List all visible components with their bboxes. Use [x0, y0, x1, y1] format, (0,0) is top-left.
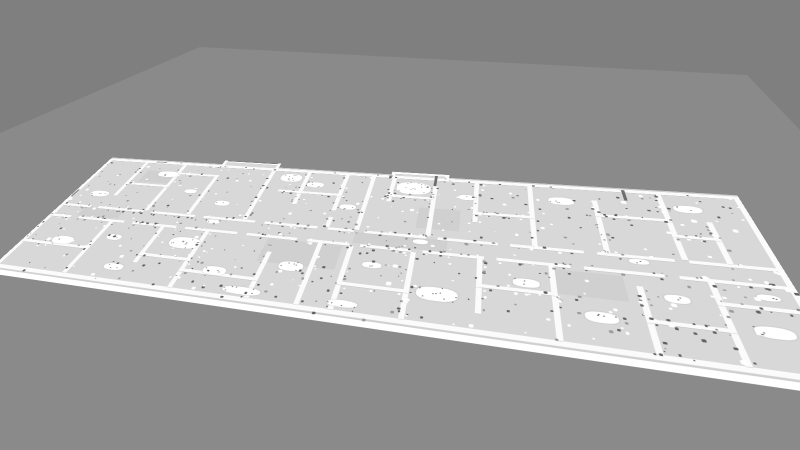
clutter-speck — [225, 289, 227, 290]
scan-noise-speck — [558, 252, 562, 254]
scan-noise-speck — [362, 201, 363, 202]
clutter-speck — [615, 316, 617, 317]
scan-noise-speck — [439, 255, 442, 257]
scan-noise-speck — [443, 237, 446, 239]
clutter-speck — [218, 272, 220, 273]
clutter-speck — [753, 326, 756, 327]
clutter-speck — [289, 180, 290, 181]
scan-noise-speck — [543, 291, 547, 294]
scan-noise-speck — [617, 329, 621, 332]
scan-noise-speck — [630, 224, 634, 226]
scan-artifact-blob — [431, 245, 435, 247]
scan-noise-speck — [621, 327, 624, 329]
scan-noise-speck — [566, 208, 569, 210]
scan-noise-speck — [729, 334, 732, 336]
clutter-speck — [292, 178, 293, 179]
scan-noise-speck — [406, 314, 408, 315]
scan-noise-speck — [748, 278, 753, 280]
scan-noise-speck — [680, 224, 684, 226]
scan-noise-speck — [585, 280, 589, 283]
scan-noise-speck — [667, 208, 671, 210]
clutter-speck — [236, 287, 238, 288]
scan-noise-speck — [695, 277, 698, 279]
scan-artifact-blob — [666, 231, 671, 233]
scan-noise-speck — [655, 196, 659, 198]
scan-noise-speck — [609, 330, 614, 333]
scan-noise-speck — [662, 341, 667, 344]
scan-artifact-blob — [414, 285, 418, 287]
clutter-speck — [422, 295, 424, 296]
scan-noise-speck — [545, 272, 548, 274]
scan-artifact-blob — [658, 206, 663, 208]
scan-noise-speck — [386, 197, 389, 198]
scan-noise-speck — [458, 273, 460, 274]
scan-noise-speck — [397, 307, 401, 310]
scan-noise-speck — [416, 212, 418, 213]
scan-noise-speck — [392, 194, 395, 196]
scan-noise-speck — [426, 187, 428, 188]
scan-noise-speck — [641, 198, 644, 200]
scan-noise-speck — [468, 223, 471, 225]
clutter-speck — [435, 293, 437, 294]
scan-noise-speck — [580, 227, 582, 228]
scan-noise-speck — [340, 185, 343, 187]
scan-artifact-blob — [541, 227, 545, 230]
clutter-speck — [421, 187, 422, 188]
clutter-speck — [405, 187, 406, 188]
scan-noise-speck — [392, 201, 394, 202]
scan-noise-speck — [598, 243, 601, 245]
clutter-speck — [216, 202, 217, 203]
scan-noise-speck — [532, 264, 534, 265]
clutter-speck — [466, 196, 467, 197]
clutter-speck — [109, 267, 111, 268]
scan-noise-speck — [536, 220, 539, 222]
clutter-speck — [372, 265, 374, 266]
scan-noise-speck — [794, 293, 800, 296]
scan-noise-speck — [722, 296, 727, 299]
scan-noise-speck — [514, 292, 518, 295]
scan-noise-speck — [564, 263, 567, 265]
scan-noise-speck — [358, 212, 360, 213]
clutter-speck — [603, 316, 605, 317]
scan-noise-speck — [693, 323, 696, 325]
scan-noise-speck — [415, 258, 418, 260]
scan-noise-speck — [705, 226, 709, 228]
scan-noise-speck — [661, 211, 665, 213]
clutter-speck — [251, 293, 253, 294]
clutter-speck — [186, 243, 188, 244]
clutter-speck — [637, 262, 639, 263]
scan-noise-speck — [385, 264, 387, 265]
scan-noise-speck — [624, 215, 628, 217]
scan-artifact-blob — [665, 297, 670, 300]
clutter-speck — [116, 267, 118, 268]
scan-noise-speck — [765, 288, 769, 290]
scan-noise-speck — [479, 221, 481, 222]
scan-noise-speck — [369, 290, 372, 292]
scan-artifact-blob — [393, 264, 398, 268]
scan-noise-speck — [475, 215, 477, 216]
scan-noise-speck — [591, 265, 594, 267]
clutter-speck — [411, 189, 412, 190]
clutter-speck — [285, 176, 286, 177]
clutter-speck — [407, 184, 408, 185]
clutter-speck — [295, 265, 297, 266]
clutter-speck — [410, 183, 411, 184]
scan-noise-speck — [471, 207, 474, 209]
clutter-speck — [223, 203, 224, 204]
clutter-speck — [100, 194, 101, 195]
scan-noise-speck — [625, 322, 628, 324]
clutter-speck — [555, 201, 556, 202]
clutter-speck — [295, 175, 296, 176]
scan-noise-speck — [638, 300, 643, 303]
scan-noise-speck — [398, 246, 400, 247]
scan-noise-speck — [686, 195, 689, 196]
scan-noise-speck — [397, 184, 399, 185]
scan-noise-speck — [479, 196, 481, 197]
scan-artifact-blob — [715, 221, 718, 222]
clutter-speck — [455, 297, 457, 298]
scan-artifact-blob — [567, 324, 571, 327]
scan-noise-speck — [613, 308, 618, 311]
clutter-speck — [514, 278, 516, 279]
clutter-speck — [353, 306, 355, 307]
scan-noise-speck — [454, 190, 456, 191]
scan-noise-speck — [531, 237, 534, 239]
scan-noise-speck — [338, 193, 341, 194]
scan-artifact-blob — [482, 185, 485, 187]
clutter-speck — [524, 280, 526, 281]
clutter-speck — [776, 299, 778, 300]
clutter-speck — [253, 289, 255, 290]
scan-noise-speck — [616, 197, 620, 199]
scan-noise-speck — [563, 236, 566, 238]
clutter-speck — [598, 314, 600, 315]
scan-noise-speck — [736, 207, 739, 208]
scan-noise-speck — [585, 270, 587, 271]
scan-noise-speck — [621, 273, 625, 275]
clutter-speck — [231, 286, 233, 287]
scan-noise-speck — [377, 175, 379, 176]
scan-noise-speck — [362, 319, 366, 322]
scan-noise-speck — [695, 235, 698, 236]
scan-noise-speck — [570, 264, 572, 265]
clutter-speck — [678, 299, 680, 300]
clutter-speck — [184, 247, 186, 248]
scan-noise-speck — [621, 253, 625, 255]
scan-noise-speck — [601, 251, 604, 253]
scan-noise-speck — [535, 246, 538, 248]
clutter-speck — [289, 176, 290, 177]
scan-noise-speck — [454, 206, 456, 207]
scan-noise-speck — [550, 310, 553, 312]
clutter-speck — [295, 270, 297, 271]
scan-noise-speck — [529, 232, 531, 233]
scan-artifact-blob — [621, 201, 627, 204]
scan-noise-speck — [478, 260, 481, 262]
scan-noise-speck — [727, 250, 731, 252]
clutter-speck — [441, 288, 443, 289]
scan-artifact-blob — [614, 252, 618, 254]
scan-noise-speck — [394, 232, 396, 234]
scan-noise-speck — [468, 182, 470, 183]
scan-noise-speck — [431, 188, 433, 189]
clutter-speck — [327, 301, 329, 302]
scan-noise-speck — [484, 296, 488, 299]
clutter-speck — [443, 298, 445, 299]
clutter-speck — [690, 210, 692, 211]
clutter-speck — [312, 185, 313, 186]
scan-artifact-blob — [389, 231, 392, 233]
scan-noise-speck — [402, 197, 405, 199]
scan-noise-speck — [680, 208, 682, 209]
scan-noise-speck — [386, 194, 388, 195]
scan-noise-speck — [410, 292, 412, 293]
clutter-speck — [419, 287, 421, 288]
scan-artifact-blob — [528, 293, 531, 295]
clutter-speck — [762, 332, 765, 333]
clutter-speck — [312, 182, 313, 183]
scan-artifact-blob — [410, 209, 414, 211]
clutter-speck — [452, 301, 454, 302]
scan-noise-speck — [712, 285, 717, 288]
scan-noise-speck — [729, 207, 733, 209]
clutter-speck — [297, 262, 299, 263]
scan-noise-speck — [363, 246, 365, 247]
clutter-speck — [281, 265, 283, 266]
clutter-speck — [680, 298, 682, 299]
scan-noise-speck — [355, 224, 358, 226]
clutter-speck — [317, 187, 318, 188]
scan-noise-speck — [655, 207, 657, 208]
clutter-speck — [772, 298, 774, 299]
scan-noise-speck — [390, 311, 394, 314]
scan-noise-speck — [480, 237, 483, 239]
scan-artifact-blob — [386, 281, 392, 285]
floor-patch — [415, 207, 460, 231]
clutter-speck — [557, 202, 558, 203]
clutter-speck — [172, 242, 174, 243]
scan-noise-speck — [567, 273, 570, 275]
scan-noise-speck — [707, 325, 710, 327]
clutter-speck — [414, 189, 415, 190]
scan-noise-speck — [344, 228, 347, 230]
scan-artifact-blob — [709, 229, 712, 230]
scan-noise-speck — [532, 185, 535, 186]
scan-noise-speck — [623, 317, 627, 319]
clutter-speck — [676, 207, 678, 208]
clutter-speck — [331, 302, 333, 303]
scan-noise-speck — [543, 246, 547, 248]
clutter-speck — [50, 240, 52, 241]
clutter-speck — [369, 266, 371, 267]
clutter-speck — [423, 192, 424, 193]
scan-noise-speck — [755, 310, 761, 313]
scan-artifact-blob — [402, 251, 406, 253]
scan-noise-speck — [448, 257, 450, 258]
scan-noise-speck — [345, 241, 347, 242]
scan-artifact-blob — [515, 234, 519, 236]
clutter-speck — [523, 284, 525, 285]
scan-noise-speck — [650, 304, 653, 306]
scan-noise-speck — [702, 339, 707, 342]
clutter-speck — [109, 264, 111, 265]
scan-noise-speck — [649, 256, 653, 258]
scan-noise-speck — [343, 278, 346, 280]
scan-noise-speck — [444, 179, 446, 180]
clutter-speck — [205, 267, 207, 268]
scan-noise-speck — [464, 243, 467, 245]
clutter-speck — [439, 292, 441, 293]
scan-noise-speck — [400, 273, 402, 274]
scan-noise-speck — [687, 286, 692, 289]
scan-noise-speck — [726, 316, 731, 319]
clutter-speck — [418, 183, 419, 184]
clutter-speck — [413, 188, 414, 189]
clutter-speck — [425, 185, 426, 186]
scan-noise-speck — [468, 299, 470, 300]
clutter-speck — [341, 305, 343, 306]
scan-noise-speck — [664, 221, 668, 223]
scan-noise-speck — [699, 201, 702, 202]
scan-noise-speck — [555, 338, 559, 341]
scan-noise-speck — [479, 214, 482, 216]
clutter-speck — [432, 293, 434, 294]
scan-noise-speck — [398, 310, 401, 312]
clutter-speck — [639, 261, 641, 262]
scan-noise-speck — [367, 193, 370, 195]
clutter-speck — [421, 184, 422, 185]
scan-artifact-blob — [536, 199, 540, 201]
scan-noise-speck — [611, 237, 614, 239]
clutter-speck — [558, 202, 559, 203]
scan-noise-speck — [380, 275, 382, 276]
clutter-speck — [198, 242, 200, 243]
3d-viewport[interactable] — [0, 0, 800, 450]
clutter-speck — [116, 237, 118, 238]
scan-noise-speck — [542, 213, 545, 215]
scan-noise-speck — [372, 260, 376, 262]
clutter-speck — [398, 191, 399, 192]
scan-noise-speck — [457, 196, 460, 198]
clutter-speck — [352, 207, 353, 208]
scan-noise-speck — [408, 233, 411, 235]
scan-noise-speck — [583, 293, 586, 295]
scan-noise-speck — [685, 235, 688, 236]
scan-noise-speck — [649, 317, 653, 320]
scan-noise-speck — [669, 308, 673, 311]
scan-noise-speck — [575, 299, 579, 301]
scan-noise-speck — [348, 267, 351, 269]
scan-noise-speck — [518, 248, 520, 249]
scan-noise-speck — [687, 239, 691, 241]
scan-artifact-blob — [591, 206, 595, 208]
clutter-speck — [288, 263, 290, 264]
scan-noise-speck — [600, 234, 602, 235]
scan-noise-speck — [394, 190, 395, 191]
scan-noise-speck — [371, 249, 375, 251]
scan-noise-speck — [340, 292, 343, 294]
scan-noise-speck — [597, 211, 600, 213]
scan-noise-speck — [358, 253, 361, 255]
scan-noise-speck — [420, 316, 423, 318]
scan-noise-speck — [468, 209, 470, 210]
clutter-speck — [104, 194, 105, 195]
clutter-speck — [192, 239, 194, 240]
scan-noise-speck — [647, 210, 651, 212]
scan-noise-speck — [428, 250, 431, 252]
scan-artifact-blob — [503, 203, 507, 205]
scan-noise-speck — [660, 278, 664, 280]
scan-noise-speck — [399, 251, 402, 253]
scan-noise-speck — [693, 332, 698, 335]
